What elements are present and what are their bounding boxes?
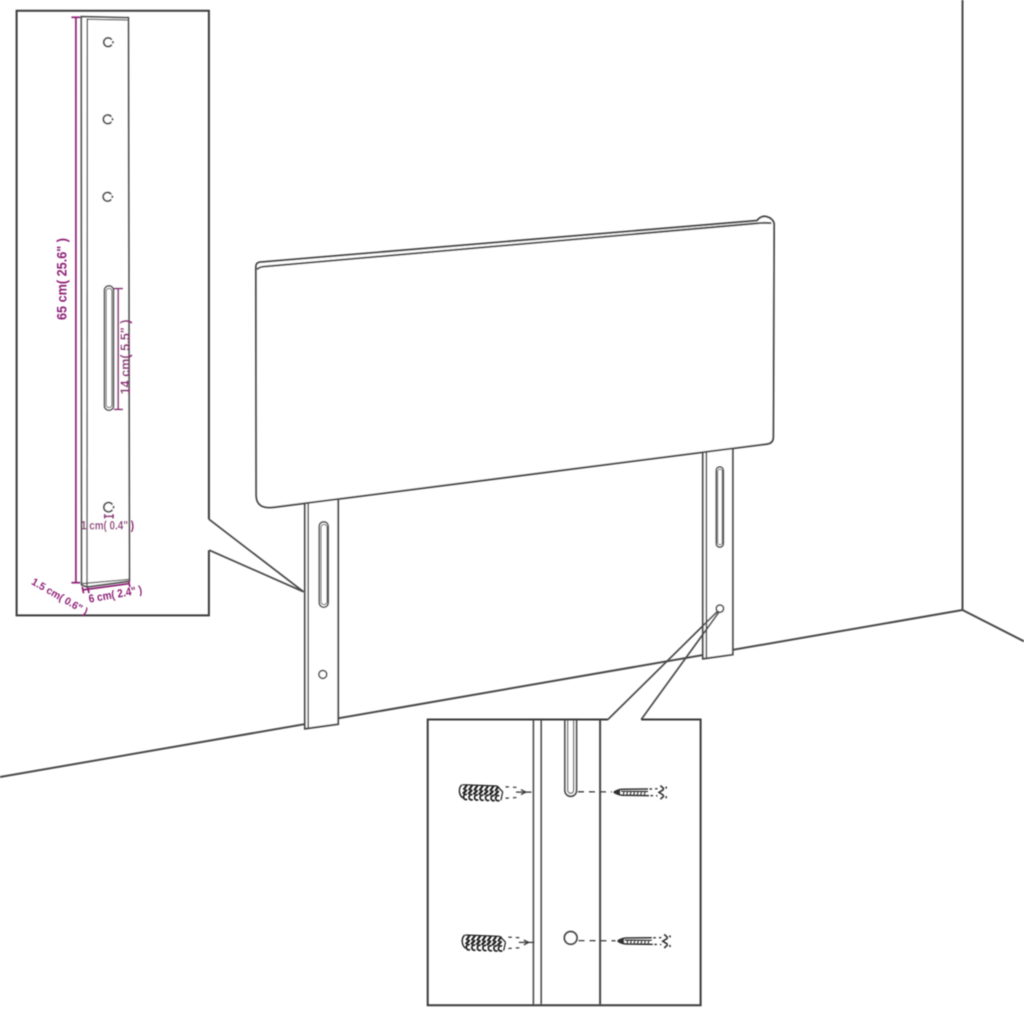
svg-text:65 cm( 25.6" ): 65 cm( 25.6" ) — [55, 238, 70, 320]
svg-text:14 cm( 5.5" ): 14 cm( 5.5" ) — [119, 320, 133, 395]
svg-text:1 cm( 0.4" ): 1 cm( 0.4" ) — [81, 520, 134, 532]
